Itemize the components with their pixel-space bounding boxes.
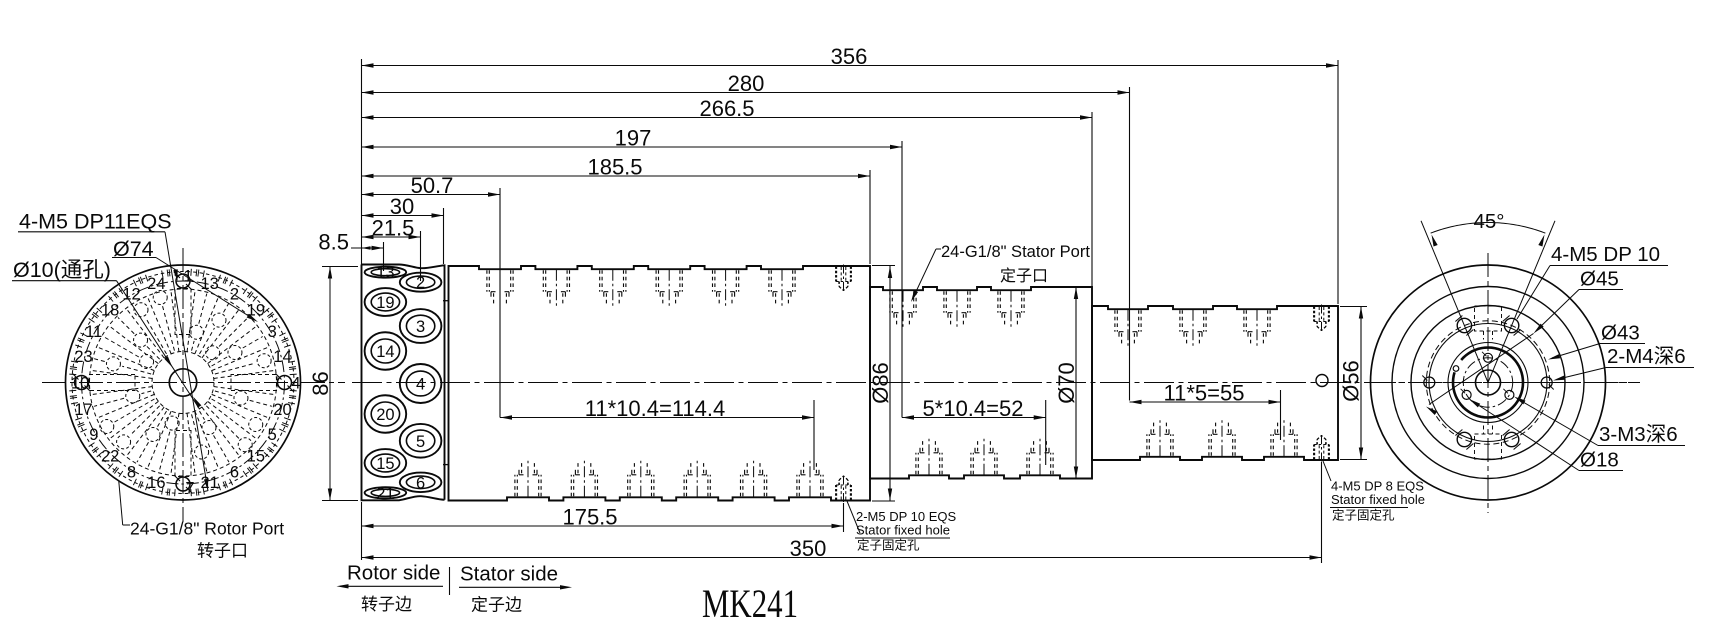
svg-text:24-G1/8" Stator Port: 24-G1/8" Stator Port	[941, 243, 1090, 261]
svg-text:17: 17	[74, 401, 92, 419]
svg-text:MK241: MK241	[702, 581, 798, 626]
svg-text:86: 86	[308, 371, 333, 395]
svg-text:22: 22	[101, 447, 119, 465]
svg-text:13: 13	[200, 275, 218, 293]
svg-text:350: 350	[790, 536, 827, 561]
svg-text:24: 24	[147, 275, 165, 293]
svg-text:11*10.4=114.4: 11*10.4=114.4	[585, 396, 726, 421]
svg-text:3: 3	[416, 318, 425, 336]
svg-text:14: 14	[273, 348, 291, 366]
svg-text:Ø18: Ø18	[1580, 449, 1619, 472]
svg-text:Stator fixed hole: Stator fixed hole	[856, 523, 950, 538]
svg-text:20: 20	[273, 401, 291, 419]
svg-text:11*5=55: 11*5=55	[1164, 381, 1245, 406]
svg-text:Stator fixed hole: Stator fixed hole	[1331, 492, 1425, 507]
svg-text:5: 5	[416, 433, 425, 451]
svg-text:4: 4	[291, 375, 300, 393]
svg-text:197: 197	[615, 126, 652, 151]
svg-text:5*10.4=52: 5*10.4=52	[923, 396, 1024, 421]
svg-text:14: 14	[376, 343, 394, 361]
svg-text:7: 7	[185, 480, 194, 498]
svg-text:21.5: 21.5	[372, 216, 415, 241]
svg-text:Ø56: Ø56	[1339, 360, 1364, 402]
svg-text:转子边: 转子边	[361, 595, 412, 614]
svg-text:定子边: 定子边	[471, 596, 522, 615]
svg-text:16: 16	[147, 474, 165, 492]
svg-text:18: 18	[101, 302, 119, 320]
svg-text:20: 20	[376, 406, 394, 424]
svg-text:356: 356	[831, 44, 868, 69]
svg-text:15: 15	[376, 455, 394, 473]
svg-text:50.7: 50.7	[411, 173, 454, 198]
svg-text:转子口: 转子口	[197, 542, 248, 561]
svg-text:Stator side: Stator side	[460, 563, 558, 586]
svg-text:定子口: 定子口	[1000, 267, 1048, 285]
svg-text:Rotor side: Rotor side	[347, 562, 440, 585]
svg-text:定子固定孔: 定子固定孔	[1332, 508, 1395, 523]
svg-text:3: 3	[268, 323, 277, 341]
svg-text:15: 15	[247, 447, 265, 465]
svg-text:Ø43: Ø43	[1601, 322, 1640, 345]
svg-text:2: 2	[230, 285, 239, 303]
svg-text:4-M5 DP 10: 4-M5 DP 10	[1551, 243, 1660, 266]
svg-text:Ø70: Ø70	[1054, 362, 1079, 404]
svg-text:Ø86: Ø86	[868, 362, 893, 404]
svg-text:2-M4深6: 2-M4深6	[1607, 345, 1686, 368]
svg-text:8.5: 8.5	[318, 230, 349, 255]
svg-text:4-M5 DP11EQS: 4-M5 DP11EQS	[19, 210, 172, 234]
svg-text:266.5: 266.5	[699, 96, 754, 121]
svg-text:Ø10(通孔): Ø10(通孔)	[13, 258, 111, 282]
svg-text:10: 10	[71, 375, 89, 393]
svg-text:6: 6	[416, 474, 425, 492]
svg-text:6: 6	[230, 464, 239, 482]
svg-text:3-M3深6: 3-M3深6	[1599, 423, 1678, 446]
svg-text:8: 8	[127, 464, 136, 482]
svg-text:21: 21	[376, 485, 394, 503]
svg-text:21: 21	[200, 474, 218, 492]
svg-text:280: 280	[728, 71, 765, 96]
svg-text:5: 5	[268, 426, 277, 444]
svg-text:定子固定孔: 定子固定孔	[857, 538, 920, 553]
svg-text:45°: 45°	[1473, 210, 1504, 233]
svg-text:9: 9	[89, 426, 98, 444]
svg-text:11: 11	[85, 323, 102, 341]
svg-text:13: 13	[376, 264, 394, 282]
svg-text:4: 4	[416, 376, 425, 394]
svg-text:175.5: 175.5	[562, 505, 617, 530]
svg-text:19: 19	[376, 294, 394, 312]
svg-text:185.5: 185.5	[587, 155, 642, 180]
svg-text:Ø45: Ø45	[1580, 268, 1619, 291]
svg-text:1: 1	[183, 268, 192, 286]
svg-text:23: 23	[74, 348, 92, 366]
svg-text:24-G1/8" Rotor Port: 24-G1/8" Rotor Port	[130, 519, 284, 539]
